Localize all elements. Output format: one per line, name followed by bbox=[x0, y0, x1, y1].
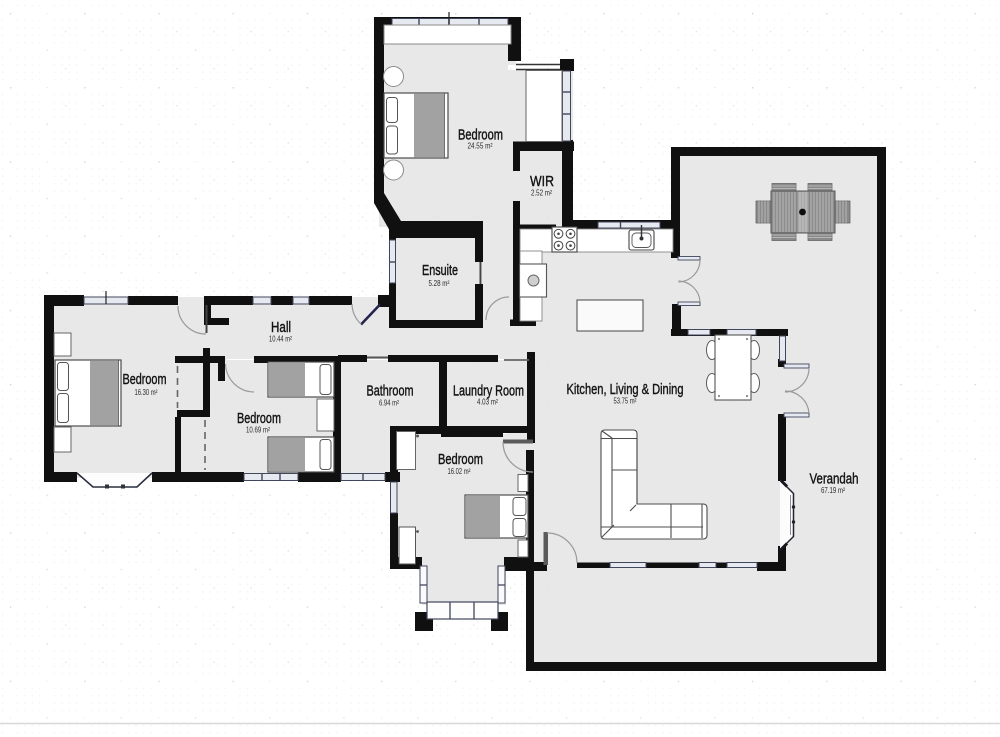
svg-text:10.44 m²: 10.44 m² bbox=[269, 335, 292, 344]
svg-text:67.19 m²: 67.19 m² bbox=[821, 486, 845, 495]
svg-text:Bathroom: Bathroom bbox=[367, 384, 414, 400]
svg-text:16.30 m²: 16.30 m² bbox=[135, 388, 158, 397]
svg-text:Bedroom: Bedroom bbox=[438, 452, 483, 468]
svg-text:5.28 m²: 5.28 m² bbox=[429, 279, 450, 288]
svg-text:24.55 m²: 24.55 m² bbox=[468, 142, 493, 151]
svg-text:2.52 m²: 2.52 m² bbox=[531, 189, 552, 198]
svg-text:Bedroom: Bedroom bbox=[123, 372, 167, 388]
svg-text:4.03 m²: 4.03 m² bbox=[477, 398, 498, 407]
svg-text:53.75 m²: 53.75 m² bbox=[614, 397, 637, 406]
svg-text:10.69 m²: 10.69 m² bbox=[246, 426, 270, 435]
svg-text:16.02 m²: 16.02 m² bbox=[448, 467, 471, 476]
svg-text:Ensuite: Ensuite bbox=[422, 263, 458, 279]
svg-text:6.94 m²: 6.94 m² bbox=[379, 399, 399, 408]
